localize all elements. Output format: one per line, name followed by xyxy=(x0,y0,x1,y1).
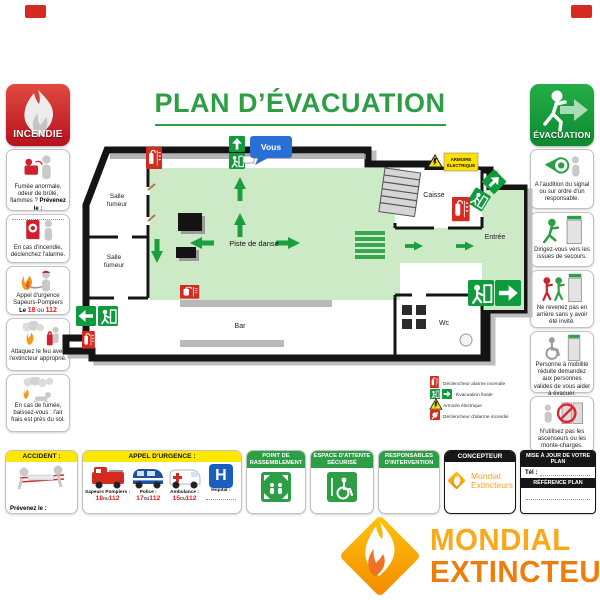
evacuation-badge: ÉVACUATION xyxy=(530,84,594,146)
fire-truck-item: Sapeurs Pompiers : 18ou112 xyxy=(85,464,130,502)
megaphone-icon xyxy=(534,152,590,182)
bar-counter xyxy=(180,300,332,307)
assembly-point-icon xyxy=(261,472,291,502)
fire-number-112: 112 xyxy=(46,307,57,314)
room-label-salle-fumeur-2: Salle xyxy=(107,254,122,261)
designer-logo: Mondial Extincteurs xyxy=(445,470,515,492)
room-label-bar: Bar xyxy=(235,323,247,330)
fire-step-alarm-text: En cas d'incendie, déclenchez l'alarme. xyxy=(9,245,67,259)
incendie-badge: INCENDIE xyxy=(6,84,70,146)
room-label-salle-fumeur-1: Salle xyxy=(110,193,125,200)
mondial-flame-icon-small xyxy=(447,470,467,492)
armoire-electrique-sign: ARMOIRE ÉLECTRIQUE xyxy=(444,153,478,171)
secure-waiting-wheelchair-icon xyxy=(327,472,357,502)
designer-header: CONCEPTEUR xyxy=(445,451,515,462)
legend-warning-icon xyxy=(430,399,442,409)
designer-box: CONCEPTEUR Mondial Extincteurs xyxy=(444,450,516,514)
legend-exit-man-icon xyxy=(430,389,440,399)
tel-label: Tél : xyxy=(525,470,537,476)
accident-header: ACCIDENT : xyxy=(6,451,77,462)
wheelchair-door-icon xyxy=(534,334,590,362)
room-label-piste: Piste de danse xyxy=(229,239,279,248)
evac-step-noreturn-text: Ne revenez pas en arrière sans y avoir é… xyxy=(533,305,591,327)
legend-extinguisher-icon xyxy=(430,376,439,388)
extinguisher-sign xyxy=(82,331,95,349)
floor-plan: Salle fumeur Salle fumeur Caisse Wc Bar … xyxy=(62,135,538,435)
crawl-under-smoke-icon xyxy=(10,377,66,403)
room-label-caisse: Caisse xyxy=(423,192,445,199)
svg-text:Armoire électrique: Armoire électrique xyxy=(443,403,482,409)
furniture-block xyxy=(176,247,196,258)
fire-step-smoke: En cas de fumée, baissez-vous : l'air fr… xyxy=(6,374,70,432)
legend-exit-arrow-icon xyxy=(442,389,452,399)
police-item: Police : 17ou112 xyxy=(130,464,166,502)
hospital-item: H Hopital : xyxy=(203,464,239,502)
emergency-call-header: APPEL D'URGENCE : xyxy=(83,451,241,462)
person-telephone-icon xyxy=(10,152,66,184)
mondial-extincteur-wordmark: MONDIAL EXTINCTEUR xyxy=(430,524,600,587)
corner-tag-left xyxy=(25,5,46,18)
corner-tag-right xyxy=(571,5,592,18)
svg-text:fumeur: fumeur xyxy=(104,262,125,269)
accident-box: ACCIDENT : Prévenez le : xyxy=(5,450,78,514)
legend-callpoint-icon xyxy=(430,410,440,420)
svg-text:ARMOIRE: ARMOIRE xyxy=(451,157,472,162)
exit-sign-running-man xyxy=(98,306,118,326)
assembly-point-header: POINT DE RASSEMBLEMENT xyxy=(247,451,305,468)
extinguisher-sign xyxy=(146,147,162,169)
emergency-call-box: APPEL D'URGENCE : Sapeurs Pompiers : 18o… xyxy=(82,450,242,514)
svg-text:ÉLECTRIQUE: ÉLECTRIQUE xyxy=(447,163,475,168)
evac-step-noreturn: Ne revenez pas en arrière sans y avoir é… xyxy=(530,270,594,328)
firefighter-icon xyxy=(10,269,66,293)
accident-emph: Prévenez le : xyxy=(10,506,47,512)
evac-step-noelevator-text: N'utilisez pas les ascenseurs ou les mon… xyxy=(533,429,591,451)
staircase xyxy=(379,168,421,217)
wc-fixture xyxy=(460,334,472,346)
fire-alarm-icon xyxy=(10,217,66,245)
svg-text:Évacuation finale: Évacuation finale xyxy=(456,391,493,398)
fire-step-alarm: En cas d'incendie, déclenchez l'alarme. xyxy=(6,214,70,263)
hospital-sign-icon: H xyxy=(209,464,233,488)
fire-truck-icon xyxy=(90,464,126,490)
exit-sign-arrow-right xyxy=(495,280,521,306)
plan-reference-header: RÉFÉRENCE PLAN xyxy=(521,478,595,488)
evac-step-pmr: Personne à mobilité réduite demandez aux… xyxy=(530,331,594,393)
fire-step-extinguisher-text: Attaquez le feu avec l'extincteur approp… xyxy=(9,349,67,363)
plan-update-header: MISE À JOUR DE VOTRE PLAN xyxy=(521,451,595,467)
fire-instructions-column: INCENDIE Fumée anormale, odeur de brûlé,… xyxy=(6,84,70,432)
ambulance-item: Ambulance : 15ou112 xyxy=(166,464,202,502)
tel-fill-in-line xyxy=(540,470,590,476)
incendie-badge-label: INCENDIE xyxy=(6,129,70,140)
plan-update-box: MISE À JOUR DE VOTRE PLAN Tél : RÉFÉRENC… xyxy=(520,450,596,514)
room-label-wc: Wc xyxy=(439,320,450,327)
intervention-managers-box: RESPONSABLES D'INTERVENTION xyxy=(378,450,440,514)
evac-step-exits: Dirigez-vous vers les issues de secours. xyxy=(530,212,594,267)
extinguisher-sign xyxy=(180,285,199,299)
svg-text:Déclencheur d'alarme incendie: Déclencheur d'alarme incendie xyxy=(443,414,509,420)
svg-text:Vous: Vous xyxy=(261,142,281,152)
evac-step-signal: A l'audition du signal ou sur ordre d'un… xyxy=(530,149,594,209)
fire-step-call-text: Appel d'urgence Sapeurs-Pompiers xyxy=(13,293,63,306)
evac-step-noelevator: N'utilisez pas les ascenseurs ou les mon… xyxy=(530,396,594,453)
svg-text:fumeur: fumeur xyxy=(107,201,128,208)
no-elevator-icon xyxy=(534,399,590,429)
evac-step-pmr-text: Personne à mobilité réduite demandez aux… xyxy=(533,362,591,398)
evac-step-exits-text: Dirigez-vous vers les issues de secours. xyxy=(533,247,591,261)
evacuation-instructions-column: ÉVACUATION A l'audition du signal ou sur… xyxy=(530,84,594,453)
mondial-extincteur-logo-flame xyxy=(332,512,428,600)
secure-waiting-header: ESPACE D'ATTENTE SÉCURISÉ xyxy=(311,451,373,468)
ambulance-icon xyxy=(167,464,203,490)
exit-sign-arrow-up xyxy=(229,136,245,152)
room-label-entree: Entrée xyxy=(485,234,506,241)
extinguisher-sign xyxy=(452,197,470,221)
fire-step-call: Appel d'urgence Sapeurs-Pompiers Le 18 o… xyxy=(6,266,70,315)
svg-text:Déclencheur alarme incendie: Déclencheur alarme incendie xyxy=(443,381,505,387)
plan-legend: Déclencheur alarme incendie Évacuation f… xyxy=(430,376,509,420)
furniture-block xyxy=(178,213,202,231)
do-not-return-icon xyxy=(534,273,590,305)
fire-number-18: 18 xyxy=(28,307,36,314)
extinguisher-attack-icon xyxy=(10,321,66,349)
police-car-icon xyxy=(130,464,166,490)
exit-sign-running-man xyxy=(468,280,494,306)
page-title: PLAN D’ÉVACUATION xyxy=(140,88,460,126)
stretcher-icon xyxy=(6,462,77,492)
call-prefix: Le xyxy=(19,308,26,314)
run-to-door-icon xyxy=(534,215,590,247)
reference-fill-in-line xyxy=(526,494,590,500)
bar-counter xyxy=(180,340,284,347)
exit-sign-arrow-left xyxy=(76,306,96,326)
exit-stairs xyxy=(355,231,385,259)
assembly-point-box: POINT DE RASSEMBLEMENT xyxy=(246,450,306,514)
fire-step-alert: Fumée anormale, odeur de brûlé, flammes … xyxy=(6,149,70,211)
fire-step-smoke-text: En cas de fumée, baissez-vous : l'air fr… xyxy=(9,403,67,425)
evac-step-signal-text: A l'audition du signal ou sur ordre d'un… xyxy=(533,182,591,204)
fill-in-line xyxy=(206,494,236,500)
evacuation-badge-label: ÉVACUATION xyxy=(530,130,594,140)
fire-step-extinguisher: Attaquez le feu avec l'extincteur approp… xyxy=(6,318,70,371)
secure-waiting-area-box: ESPACE D'ATTENTE SÉCURISÉ xyxy=(310,450,374,514)
call-sep: ou xyxy=(37,308,44,314)
intervention-managers-header: RESPONSABLES D'INTERVENTION xyxy=(379,451,439,468)
